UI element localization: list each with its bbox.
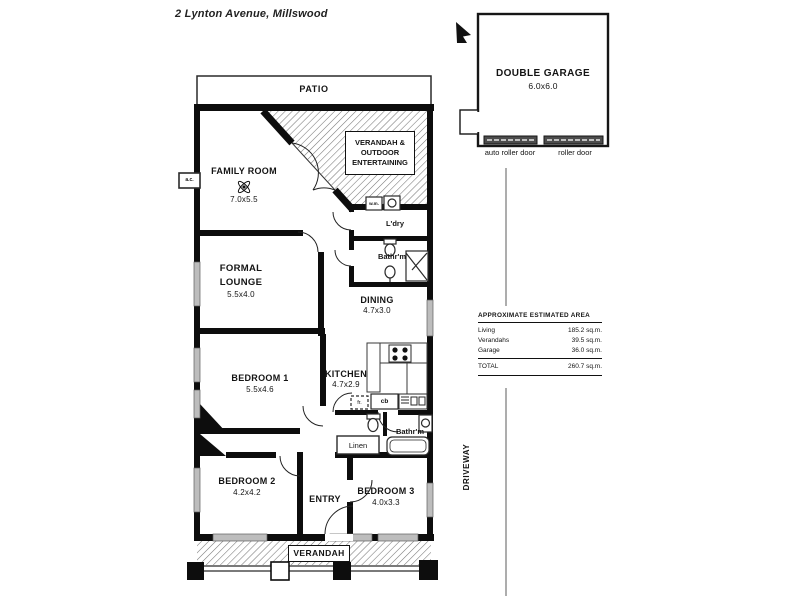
room-label-bedroom1: BEDROOM 1 <box>225 373 295 384</box>
room-label-bedroom2: BEDROOM 2 <box>212 476 282 487</box>
room-label-kitchen: KITCHEN <box>324 369 368 380</box>
roller-door-icon <box>544 136 603 144</box>
room-label-family-room: FAMILY ROOM <box>198 166 290 177</box>
room-label-entry: ENTRY <box>303 494 347 505</box>
room-size-kitchen: 4.7x2.9 <box>324 380 368 390</box>
stove-icon <box>389 345 411 362</box>
wm-label: w.m. <box>366 201 382 207</box>
room-label-laundry: L'dry <box>375 219 415 228</box>
area-total-label: TOTAL <box>478 362 498 372</box>
room-label-verandah-outdoor: VERANDAH & OUTDOOR ENTERTAINING <box>345 131 415 175</box>
auto-roller-door-label: auto roller door <box>479 148 541 157</box>
room-label-linen: Linen <box>337 441 379 450</box>
ceiling-fan-icon <box>237 180 251 194</box>
floorplan-page: 2 Lynton Avenue, Millswood PATIO VERANDA… <box>0 0 800 600</box>
room-label-bedroom3: BEDROOM 3 <box>352 486 420 497</box>
room-label-formal-lounge: FORMAL LOUNGE <box>212 262 270 291</box>
area-row-garage: Garage 36.0 sq.m. <box>478 346 602 356</box>
toilet2-icon <box>367 414 380 432</box>
room-size-bedroom1: 5.5x4.6 <box>225 385 295 395</box>
room-label-verandah-front: VERANDAH <box>288 545 350 562</box>
area-table-rule <box>478 322 602 323</box>
area-table-title: APPROXIMATE ESTIMATED AREA <box>478 312 602 319</box>
auto-roller-door-icon <box>484 136 537 144</box>
area-row-label: Living <box>478 326 495 336</box>
room-label-bathroom1: Bathr'm <box>370 252 414 261</box>
area-row-living: Living 185.2 sq.m. <box>478 326 602 336</box>
double-door-arc-2 <box>313 188 335 190</box>
area-row-value: 185.2 sq.m. <box>568 326 602 336</box>
area-total-value: 260.7 sq.m. <box>568 362 602 372</box>
room-size-dining: 4.7x3.0 <box>352 306 402 316</box>
area-row-value: 36.0 sq.m. <box>572 346 602 356</box>
garage-label: DOUBLE GARAGE <box>478 68 608 81</box>
garage-side-door <box>460 110 478 134</box>
room-size-formal-lounge: 5.5x4.0 <box>212 290 270 300</box>
area-table: APPROXIMATE ESTIMATED AREA Living 185.2 … <box>478 312 602 379</box>
room-label-driveway: DRIVEWAY <box>462 427 472 507</box>
page-title: 2 Lynton Avenue, Millswood <box>175 8 405 22</box>
cursor-arrow-icon <box>456 22 471 43</box>
laundry-tub-icon <box>384 196 400 210</box>
room-label-patio: PATIO <box>197 84 431 95</box>
ac-label: a.c. <box>179 177 200 183</box>
area-row-label: Verandahs <box>478 336 509 346</box>
area-row-value: 39.5 sq.m. <box>572 336 602 346</box>
room-size-bedroom3: 4.0x3.3 <box>352 498 420 508</box>
bathtub-icon <box>387 437 429 455</box>
area-table-rule <box>478 375 602 376</box>
area-table-rule <box>478 358 602 359</box>
room-label-bathroom2: Bathr'm <box>388 427 432 436</box>
area-row-verandahs: Verandahs 39.5 sq.m. <box>478 336 602 346</box>
room-size-family-room: 7.0x5.5 <box>198 195 290 205</box>
room-size-bedroom2: 4.2x4.2 <box>212 488 282 498</box>
area-row-total: TOTAL 260.7 sq.m. <box>478 362 602 372</box>
area-row-label: Garage <box>478 346 500 356</box>
cb-label: cb <box>371 398 398 406</box>
room-label-dining: DINING <box>352 295 402 306</box>
fridge-label: fr. <box>351 400 368 407</box>
basin-icon <box>385 266 395 282</box>
garage-size: 6.0x6.0 <box>478 81 608 92</box>
sink-icon <box>399 394 427 409</box>
roller-door-label: roller door <box>545 148 605 157</box>
